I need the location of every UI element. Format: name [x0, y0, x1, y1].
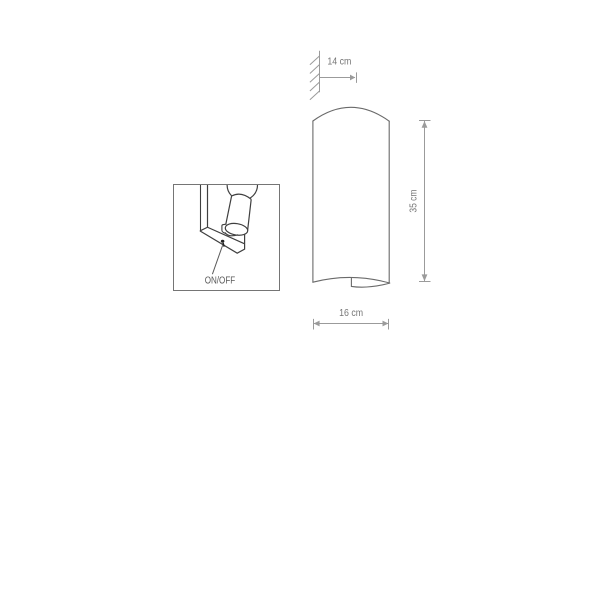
svg-text:ON/OFF: ON/OFF — [205, 275, 236, 286]
svg-text:16 cm: 16 cm — [339, 308, 363, 319]
svg-text:35 cm: 35 cm — [408, 190, 419, 213]
svg-text:14 cm: 14 cm — [327, 56, 351, 67]
